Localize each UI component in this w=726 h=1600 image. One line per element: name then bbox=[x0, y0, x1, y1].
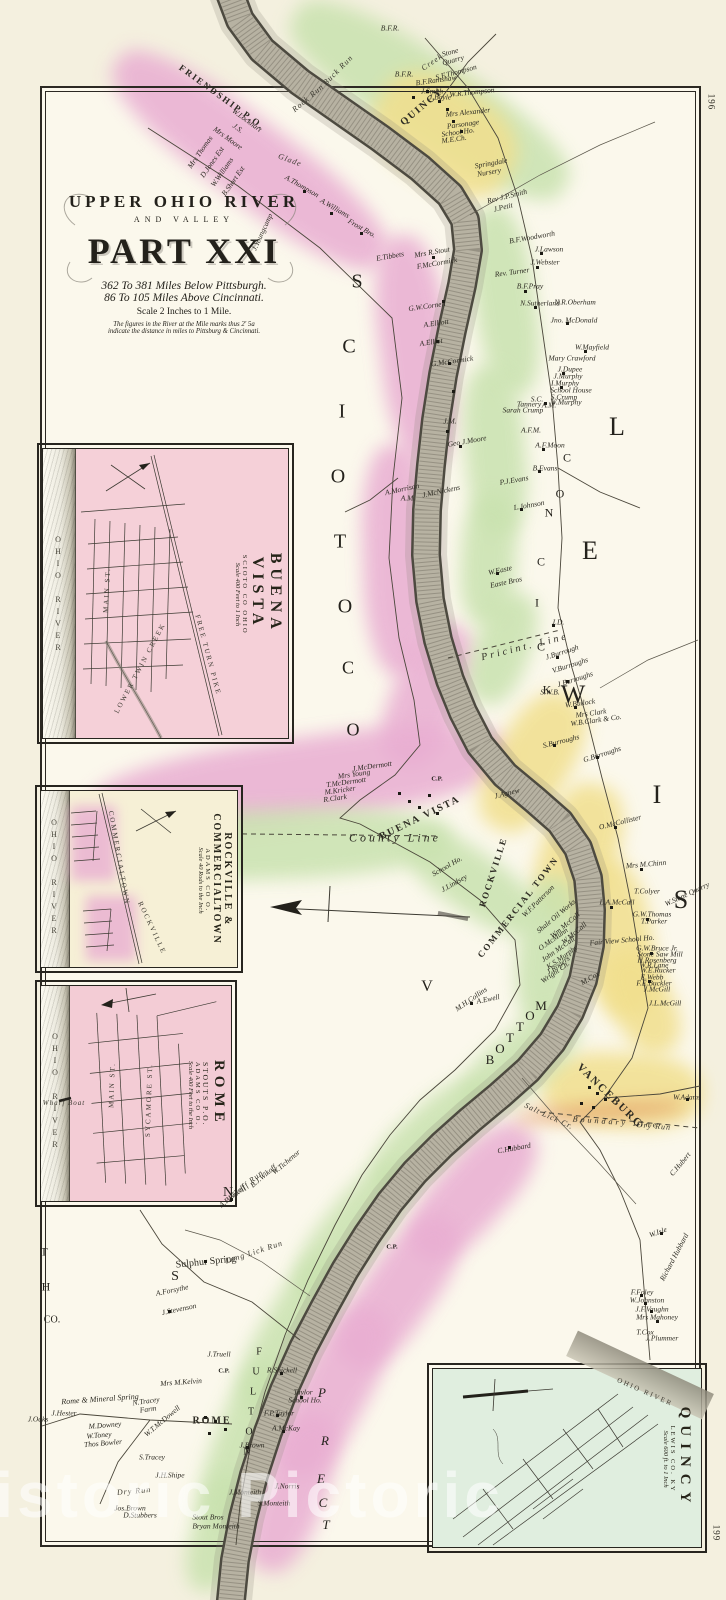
inset-compass-icon bbox=[136, 809, 176, 833]
inset-subtitle-text: SCIOTO CO OHIO bbox=[241, 523, 248, 666]
inset-buena-vista: BUENA VISTA SCIOTO CO OHIO Scale 400 Fee… bbox=[42, 448, 289, 739]
map-title-sub: AND VALLEY bbox=[58, 215, 310, 224]
miles-above-cincinnati: 86 To 105 Miles Above Cincinnati. bbox=[58, 292, 310, 304]
inset-scale-text: Scale 400 Feet to 1 Inch bbox=[234, 523, 241, 666]
inset-title-rome: ROME STOUTS P.O. ADAMS CO O. Scale 400 F… bbox=[187, 1058, 227, 1128]
inset-rome: ROME STOUTS P.O. ADAMS CO O. Scale 400 F… bbox=[40, 985, 232, 1202]
inset-title-text: ROCKVILLE & bbox=[222, 813, 233, 944]
inset-title-text: ROME bbox=[210, 1058, 227, 1128]
atlas-page: BUENA VISTA SCIOTO CO OHIO Scale 400 Fee… bbox=[0, 0, 726, 1600]
page-number-bottom: 199 bbox=[711, 1525, 721, 1542]
inset-quincy-svg bbox=[433, 1369, 701, 1547]
inset-title-text: BUENA VISTA bbox=[248, 521, 284, 666]
inset-title-text: COMMERCIALTOWN bbox=[211, 813, 222, 944]
compass-arrow-icon bbox=[270, 886, 470, 922]
inset-scale-text: Scale 600 ft. to 1 Inch bbox=[662, 1409, 669, 1510]
inset-title-text: QUINCY bbox=[676, 1407, 693, 1510]
inset-rockville: ROCKVILLE & COMMERCIALTOWN ADAMS CO O. S… bbox=[40, 790, 238, 968]
miles-below-pittsburgh: 362 To 381 Miles Below Pittsburgh. bbox=[58, 280, 310, 292]
map-note-2: indicate the distance in miles to Pittsb… bbox=[58, 328, 310, 335]
inset-title-quincy: QUINCY LEWIS CO. KY Scale 600 ft. to 1 I… bbox=[662, 1407, 693, 1510]
map-scale: Scale 2 Inches to 1 Mile. bbox=[58, 307, 310, 317]
map-title: UPPER OHIO RIVER bbox=[58, 192, 310, 212]
title-block: UPPER OHIO RIVER AND VALLEY PART XXI 362… bbox=[58, 192, 310, 335]
inset-subtitle-text: ADAMS CO O. bbox=[194, 1060, 201, 1128]
inset-quincy: QUINCY LEWIS CO. KY Scale 600 ft. to 1 I… bbox=[432, 1368, 702, 1548]
inset-compass-icon bbox=[463, 1379, 553, 1411]
inset-scale-text: Scale 40 Rods to the Inch bbox=[197, 815, 204, 944]
page-number-top: 196 bbox=[706, 94, 716, 111]
inset-compass-icon bbox=[101, 988, 156, 1012]
map-part-number: PART XXI bbox=[58, 230, 310, 272]
inset-title-buena-vista: BUENA VISTA SCIOTO CO OHIO Scale 400 Fee… bbox=[234, 521, 284, 666]
inset-subtitle-text: STOUTS P.O. bbox=[201, 1060, 210, 1128]
inset-subtitle-text: LEWIS CO. KY bbox=[669, 1409, 676, 1510]
inset-subtitle-text: ADAMS CO O. bbox=[204, 815, 211, 944]
inset-title-rockville: ROCKVILLE & COMMERCIALTOWN ADAMS CO O. S… bbox=[197, 813, 233, 944]
inset-scale-text: Scale 400 Feet to the Inch bbox=[187, 1060, 194, 1128]
map-note-1: The figures in the River at the Mile mar… bbox=[58, 321, 310, 328]
inset-compass-icon bbox=[106, 463, 150, 491]
